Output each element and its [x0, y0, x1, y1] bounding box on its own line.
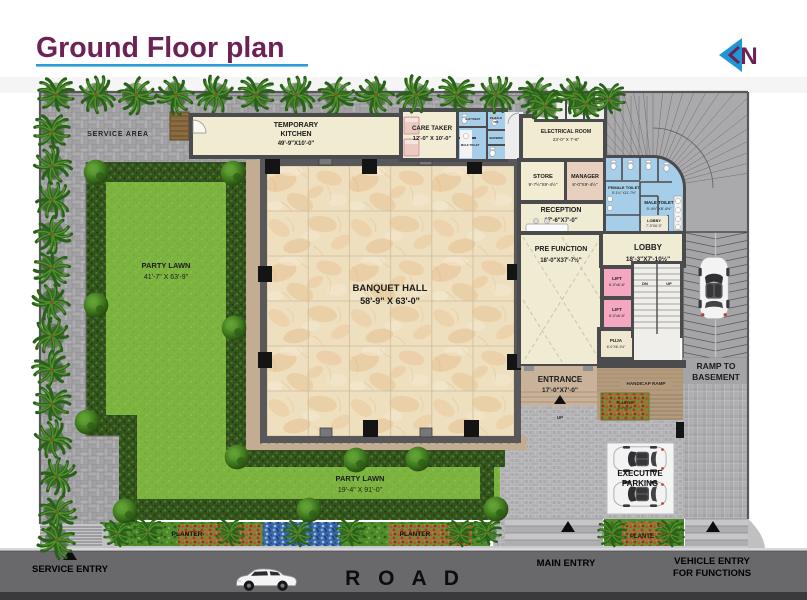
svg-text:UP: UP — [666, 281, 672, 286]
svg-text:9'-1¼" X11'-7½": 9'-1¼" X11'-7½" — [612, 191, 637, 195]
svg-text:9'-7½"X9'-4½": 9'-7½"X9'-4½" — [528, 181, 557, 187]
svg-text:7'-3"X6'-0": 7'-3"X6'-0" — [646, 224, 663, 228]
svg-text:FOR FUNCTIONS: FOR FUNCTIONS — [673, 568, 751, 579]
svg-text:6'-0"x6'-6": 6'-0"x6'-6" — [609, 314, 626, 318]
svg-text:R O A D: R O A D — [345, 567, 465, 590]
svg-text:PLANTE: PLANTE — [630, 534, 654, 540]
svg-text:12'-0" X 10'-0": 12'-0" X 10'-0" — [413, 136, 452, 142]
svg-text:17'-0"X7'-0": 17'-0"X7'-0" — [542, 387, 578, 394]
svg-text:PLANTER: PLANTER — [400, 531, 431, 538]
svg-text:PUJA: PUJA — [610, 338, 623, 343]
svg-text:6'-0"X6'-1½": 6'-0"X6'-1½" — [607, 345, 626, 349]
svg-text:ELECTRICAL ROOM: ELECTRICAL ROOM — [541, 129, 591, 135]
svg-text:KITCHEN: KITCHEN — [280, 131, 311, 138]
svg-text:19'-4" X 91'-0": 19'-4" X 91'-0" — [338, 487, 383, 494]
svg-text:58'-9" X 63'-0": 58'-9" X 63'-0" — [360, 296, 420, 306]
svg-text:MALE TOILET: MALE TOILET — [644, 200, 674, 205]
svg-text:PARTY LAWN: PARTY LAWN — [336, 474, 385, 483]
svg-text:8'-0"X9'-4½": 8'-0"X9'-4½" — [572, 181, 598, 187]
svg-text:ENTRANCE: ENTRANCE — [538, 375, 583, 384]
svg-text:PLANTER: PLANTER — [617, 401, 634, 405]
svg-text:MANAGER: MANAGER — [571, 174, 599, 180]
svg-text:PRE FUNCTION: PRE FUNCTION — [535, 246, 588, 253]
svg-text:TOI.: TOI. — [493, 120, 499, 124]
svg-text:MALE TOILET: MALE TOILET — [461, 143, 480, 147]
svg-text:49'-9"X10'-0": 49'-9"X10'-0" — [278, 141, 315, 147]
svg-text:BANQUET HALL: BANQUET HALL — [353, 283, 428, 294]
svg-text:LIFT: LIFT — [612, 307, 622, 312]
svg-text:TEMPORARY: TEMPORARY — [274, 122, 319, 129]
svg-text:BASEMENT: BASEMENT — [692, 372, 741, 382]
svg-text:LOBBY: LOBBY — [634, 243, 663, 252]
svg-text:41'-7" X 63'-9": 41'-7" X 63'-9" — [144, 274, 189, 281]
svg-text:9'-0"X3'-0": 9'-0"X3'-0" — [618, 406, 632, 410]
svg-text:MAIN ENTRY: MAIN ENTRY — [537, 558, 596, 569]
svg-text:9'-4½" X8'-4½": 9'-4½" X8'-4½" — [646, 207, 672, 211]
svg-text:RECEPTION: RECEPTION — [541, 207, 582, 214]
svg-text:SHOWER: SHOWER — [489, 136, 503, 140]
svg-text:PLANTER: PLANTER — [172, 531, 203, 538]
svg-text:VEHICLE ENTRY: VEHICLE ENTRY — [674, 556, 750, 567]
svg-text:STORE: STORE — [533, 174, 553, 180]
svg-text:EXECUTIVE: EXECUTIVE — [617, 469, 663, 478]
svg-text:B.W TOILET: B.W TOILET — [466, 117, 481, 121]
svg-text:Ground Floor plan: Ground Floor plan — [36, 32, 285, 64]
svg-text:UP: UP — [557, 415, 563, 420]
svg-text:6'-0"x6'-6": 6'-0"x6'-6" — [609, 283, 626, 287]
svg-text:18'-0"X37'-7½": 18'-0"X37'-7½" — [540, 257, 582, 264]
svg-text:DN: DN — [642, 281, 648, 286]
svg-text:SERVICE ENTRY: SERVICE ENTRY — [32, 564, 109, 575]
svg-text:N: N — [740, 43, 757, 70]
svg-text:23'-0" X 7'-6": 23'-0" X 7'-6" — [553, 137, 580, 142]
svg-text:CARE TAKER: CARE TAKER — [412, 125, 453, 132]
svg-text:LIFT: LIFT — [612, 276, 622, 281]
svg-text:FEMALE TOILET: FEMALE TOILET — [608, 185, 640, 190]
svg-text:SERVICE AREA: SERVICE AREA — [87, 131, 149, 138]
svg-text:PARKING: PARKING — [622, 479, 658, 488]
svg-text:RAMP TO: RAMP TO — [697, 361, 736, 371]
svg-text:PARTY LAWN: PARTY LAWN — [142, 261, 191, 270]
svg-text:LOBBY: LOBBY — [647, 218, 661, 223]
svg-text:HANDICAP RAMP: HANDICAP RAMP — [627, 381, 666, 386]
